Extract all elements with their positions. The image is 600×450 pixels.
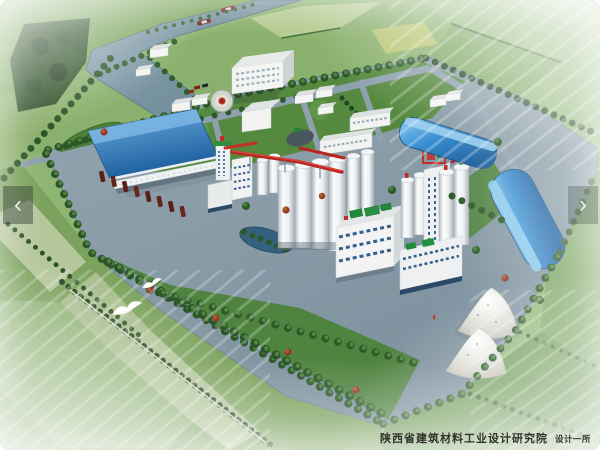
chevron-left-icon: ‹ (14, 193, 22, 217)
carousel-prev-button[interactable]: ‹ (3, 186, 33, 224)
carousel-next-button[interactable]: › (568, 186, 598, 224)
aerial-rendering (0, 0, 600, 450)
rendering-viewer: ‹ › 陕西省建筑材料工业设计研究院 设计一所 (0, 0, 600, 450)
worker-figure (433, 315, 435, 320)
chevron-right-icon: › (579, 193, 587, 217)
